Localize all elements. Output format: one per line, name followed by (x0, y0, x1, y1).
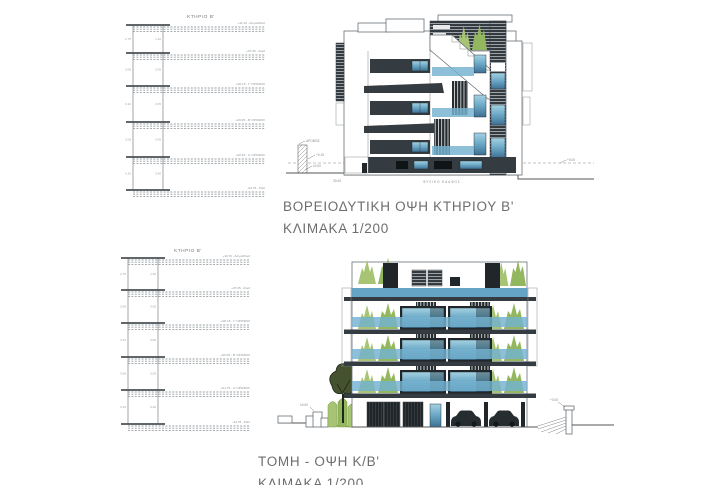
level-label: +07.05 - Roof (246, 49, 265, 53)
dimension-left: 3.06 (120, 305, 126, 309)
marker-level: ±0.00 (313, 164, 321, 168)
caption-top-title: ΒΟΡΕΙΟΔΥΤΙΚΗ ΟΨΗ ΚΤΗΡΙΟΥ Β' (283, 196, 514, 218)
ground-window (460, 161, 482, 169)
leader-line (560, 160, 566, 163)
column (521, 402, 525, 427)
marker-level: +0.15 (316, 153, 324, 157)
marker-level: +0.00 (550, 398, 558, 402)
level-label: -04.75 - Pilot (232, 420, 250, 424)
dimension-right: 3.40 (150, 405, 156, 409)
dimension-right: 3.05 (155, 68, 161, 72)
entry-step (321, 418, 328, 427)
schematic-body: +11.10 - Δώμα/Roof2.751.40+07.05 - Roof3… (125, 21, 265, 197)
dimension-right: 1.40 (155, 37, 161, 41)
marker-road: ΔΡΟΜΟΣ (306, 139, 320, 143)
level-label: +00.15 - Α' ΟΡΟΦΟΣ (236, 153, 265, 157)
stair-bulkhead (383, 263, 398, 288)
low-wall (278, 416, 292, 423)
column (484, 402, 488, 427)
dimension-left: 3.06 (120, 372, 126, 376)
level-label: +10.70 - Δώμα/Roof (222, 254, 250, 258)
glass-balustrade (432, 67, 474, 76)
ground-line (344, 175, 594, 179)
dimension-left: 3.10 (125, 172, 131, 176)
schematic-body: +10.70 - Δώμα/Roof2.751.40+07.05 - Roof3… (120, 254, 250, 431)
ground-opening (396, 161, 408, 169)
level-label: -04.75 - Pilot (247, 186, 265, 190)
dimension-left: 3.06 (125, 138, 131, 142)
dimension-right: 1.40 (150, 272, 156, 276)
glass-door (474, 55, 486, 73)
garage-door (403, 402, 423, 427)
level-label: +07.05 - Roof (231, 286, 250, 290)
roof-louver-panel (428, 270, 442, 286)
trellis-strip (336, 103, 344, 125)
glass-balustrade (432, 108, 474, 117)
ground-opening (434, 161, 452, 169)
dimension-left: 3.10 (120, 338, 126, 342)
roof-equipment (450, 277, 460, 286)
leader-line (308, 155, 315, 159)
roof-louver-panel (412, 270, 426, 286)
retaining-wall (298, 145, 307, 173)
schematic-title: ΚΤΗΡΙΟ Β' (174, 248, 202, 254)
trellis-screen (523, 43, 532, 91)
drawing-sheet: ΚΤΗΡΙΟ Β' +11.10 - Δώμα/Roof2.751.40+07.… (0, 0, 726, 485)
dimension-right: 3.05 (155, 102, 161, 106)
shrub (328, 402, 337, 428)
glass-door (474, 95, 486, 117)
ramp-wall (566, 408, 572, 434)
side-wall (506, 41, 522, 175)
level-label: +03.05 - Β' ΟΡΟΦΟΣ (236, 118, 266, 122)
column (446, 402, 450, 427)
caption-bottom: ΤΟΜΗ - ΟΨΗ Κ/Β' ΚΛΙΜΑΚΑ 1/200 (258, 451, 380, 485)
dimension-left: 2.75 (125, 37, 131, 41)
dimension-right: 3.05 (150, 338, 156, 342)
roof-slab (344, 297, 536, 301)
level-label: +11.10 - Δώμα/Roof (238, 21, 265, 25)
ramp-wall-cap (564, 406, 574, 410)
leader-line (299, 141, 305, 144)
roof-slot (433, 25, 450, 29)
dimension-left: 3.10 (120, 405, 126, 409)
dimension-right: 3.05 (150, 305, 156, 309)
natural-ground-label: ΦΥΣΙΚΟ ΕΔΑΦΟΣ (423, 180, 461, 184)
stair-bulkhead (485, 263, 500, 288)
marker-level: ±0.00 (300, 403, 308, 407)
dimension-right: 3.40 (155, 172, 161, 176)
caption-top-scale: ΚΛΙΜΑΚΑ 1/200 (283, 218, 514, 240)
dimension-right: 3.05 (155, 138, 161, 142)
marker-level: +0.00 (567, 158, 575, 162)
caption-top: ΒΟΡΕΙΟΔΥΤΙΚΗ ΟΨΗ ΚΤΗΡΙΟΥ Β' ΚΛΙΜΑΚΑ 1/20… (283, 196, 514, 240)
level-schematic-top: ΚΤΗΡΙΟ Β' +11.10 - Δώμα/Roof2.751.40+07.… (123, 8, 273, 200)
level-label: +06.15 - Γ' ΟΡΟΦΟΣ (236, 82, 265, 86)
elevation-drawing-northwest: ΔΡΟΜΟΣ +0.15 ±0.00 +0.00 30.05 ΦΥΣΙΚΟ ΕΔ… (278, 5, 600, 185)
leader-line (310, 407, 314, 411)
glass-balustrade (432, 146, 474, 155)
dimension-right: 3.05 (150, 372, 156, 376)
caption-bottom-scale: ΚΛΙΜΑΚΑ 1/200 (258, 473, 380, 485)
level-label: +01.75 - Α' ΟΡΟΦΟΣ (221, 386, 250, 390)
glass-panel (491, 73, 505, 89)
level-label: +06.15 - Γ' ΟΡΟΦΟΣ (221, 319, 250, 323)
section-drawing: +0.00 ±0.00 (270, 246, 620, 458)
entrance-post (362, 163, 367, 173)
dimension-left: 3.10 (125, 102, 131, 106)
dimension-left: 2.75 (120, 272, 126, 276)
leader-line (558, 402, 565, 407)
roof-glass-balustrade (352, 288, 527, 297)
schematic-title: ΚΤΗΡΙΟ Β' (187, 14, 215, 20)
parapet (386, 19, 424, 32)
level-label: +03.05 - Β' ΟΡΟΦΟΣ (221, 353, 251, 357)
caption-bottom-title: ΤΟΜΗ - ΟΨΗ Κ/Β' (258, 451, 380, 473)
ramp-hatch (538, 417, 566, 434)
level-schematic-bottom: ΚΤΗΡΙΟ Β' +10.70 - Δώμα/Roof2.751.40+07.… (116, 244, 266, 436)
louver-strip (336, 43, 344, 101)
glass-door (474, 133, 486, 155)
louver-gap (491, 63, 505, 71)
parapet (358, 23, 388, 32)
ground-window (414, 161, 428, 169)
entrance-door (430, 404, 441, 427)
dimension-text: 30.05 (333, 179, 341, 183)
glass-panel (491, 138, 505, 158)
glass-panel (491, 105, 505, 125)
trellis-screen (523, 97, 530, 125)
dimension-left: 3.06 (125, 68, 131, 72)
